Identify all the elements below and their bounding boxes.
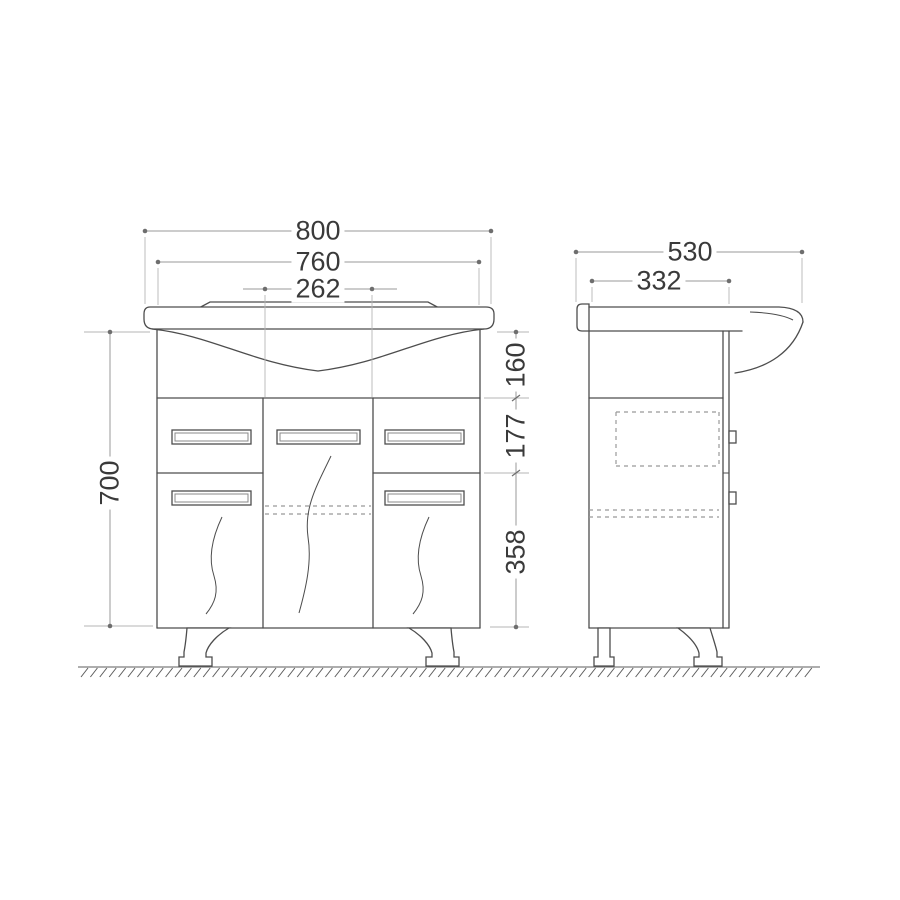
dim-label-overall-width: 800 — [291, 218, 344, 245]
basin-bowl-side — [735, 322, 803, 373]
door-wave-decorations — [206, 456, 429, 614]
counter-rim-inner-side — [750, 312, 793, 320]
vanity-dimension-drawing — [0, 0, 900, 900]
front-view — [144, 302, 494, 666]
technical-drawing-canvas: 800 760 262 700 160 177 358 530 332 — [0, 0, 900, 900]
side-leg-back — [594, 628, 614, 666]
wave-middle-door — [299, 456, 331, 613]
side-view-legs — [594, 628, 722, 666]
ground-hatch — [81, 668, 812, 677]
door-handle-right — [385, 491, 464, 505]
dim-label-overall-depth: 530 — [663, 239, 716, 266]
side-cabinet-box — [589, 331, 729, 628]
dimension-lines — [84, 229, 804, 630]
ground-line — [78, 667, 820, 677]
dim-label-cabinet-depth: 332 — [632, 268, 685, 295]
drawer-handle-left — [172, 430, 251, 444]
middle-door-dashed-lines — [265, 506, 371, 514]
door-handle-left — [172, 491, 251, 505]
dim-label-door-section-height: 358 — [503, 525, 530, 578]
handle-profile-upper — [729, 431, 736, 443]
front-view-legs — [179, 628, 459, 666]
counter-top-side — [589, 307, 803, 322]
front-leg-left — [179, 628, 229, 666]
dim-label-cabinet-width: 760 — [291, 249, 344, 276]
counter-back-lip-side — [577, 304, 589, 331]
dim-label-basin-section-height: 160 — [503, 338, 530, 391]
front-cabinet-box — [157, 330, 480, 628]
dim-label-drawer-section-height: 177 — [503, 409, 530, 462]
door-handle-middle — [277, 430, 360, 444]
dim-label-cabinet-height: 700 — [97, 456, 124, 509]
side-dashed-lines — [589, 510, 719, 517]
front-handles — [172, 430, 464, 505]
wave-right-door — [413, 517, 429, 614]
dim-label-center-door-width: 262 — [291, 276, 344, 303]
handle-profile-lower — [729, 492, 736, 504]
hidden-drawer-dashed-box — [616, 412, 719, 466]
counter-top-front — [144, 307, 494, 329]
side-leg-front — [678, 628, 722, 666]
wave-left-door — [206, 517, 222, 614]
front-leg-right — [409, 628, 459, 666]
drawer-handle-right — [385, 430, 464, 444]
basin-curve-front — [152, 329, 484, 371]
side-view — [577, 304, 803, 666]
